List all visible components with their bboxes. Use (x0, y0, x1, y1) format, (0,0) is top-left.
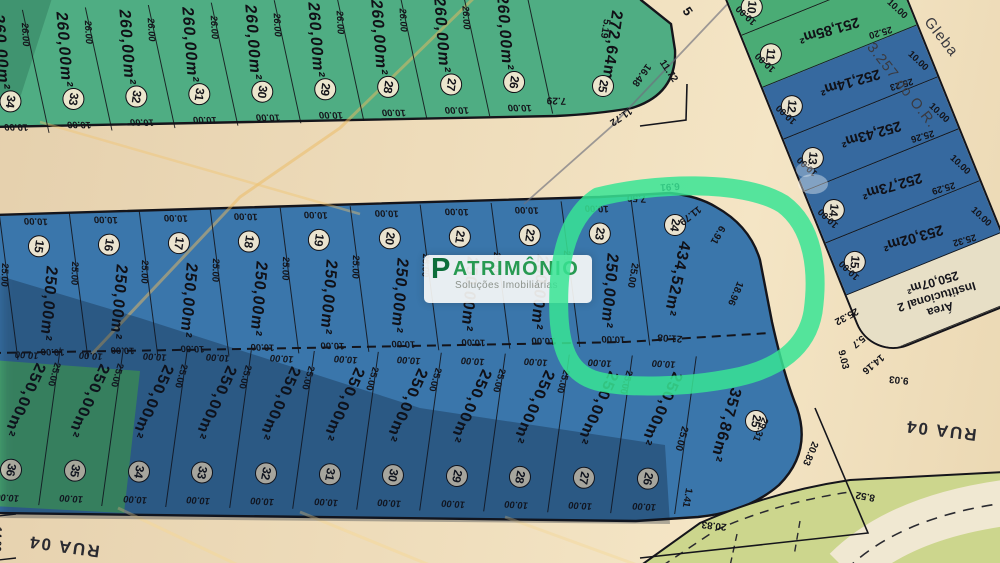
plat-map-photo: 26.00260,00m²3410.0026.00260,00m²3310.00… (0, 0, 1000, 563)
glare-spot (796, 163, 814, 177)
highlight-ring (559, 186, 815, 386)
glare-spot (798, 174, 828, 194)
photo-overlay (0, 0, 1000, 563)
